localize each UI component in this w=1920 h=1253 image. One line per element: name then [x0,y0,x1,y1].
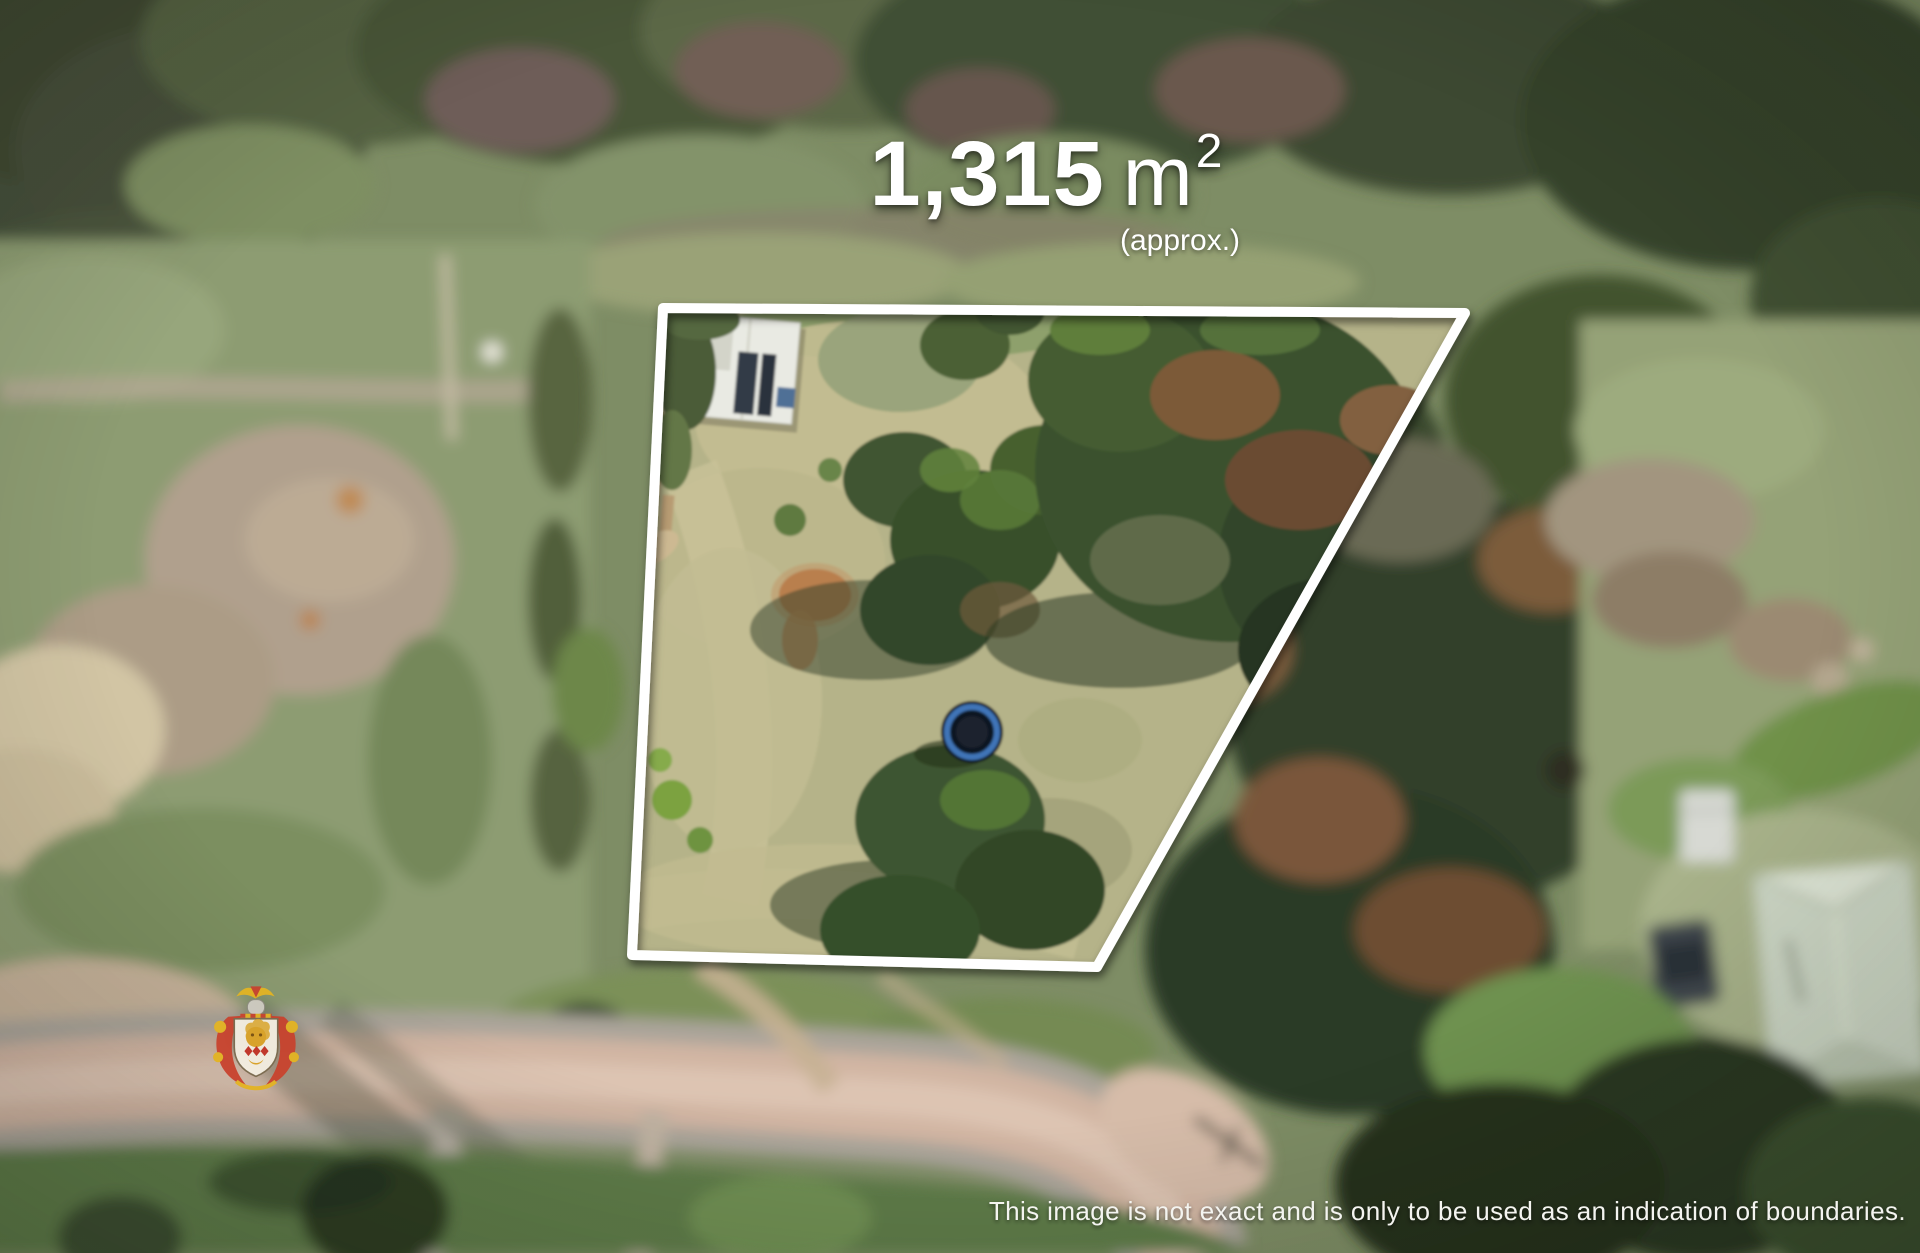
area-value: 1,315 [870,123,1105,225]
area-qualifier: (approx.) [1090,224,1270,258]
area-exponent: 2 [1196,125,1223,178]
aerial-boundary-image: 1,315m2 (approx.) This image is not exac… [0,0,1920,1253]
disclaimer-text: This image is not exact and is only to b… [989,1196,1906,1227]
agency-crest-watermark [208,982,304,1100]
area-label: 1,315m2 [636,128,1456,220]
area-unit: m [1123,129,1193,223]
